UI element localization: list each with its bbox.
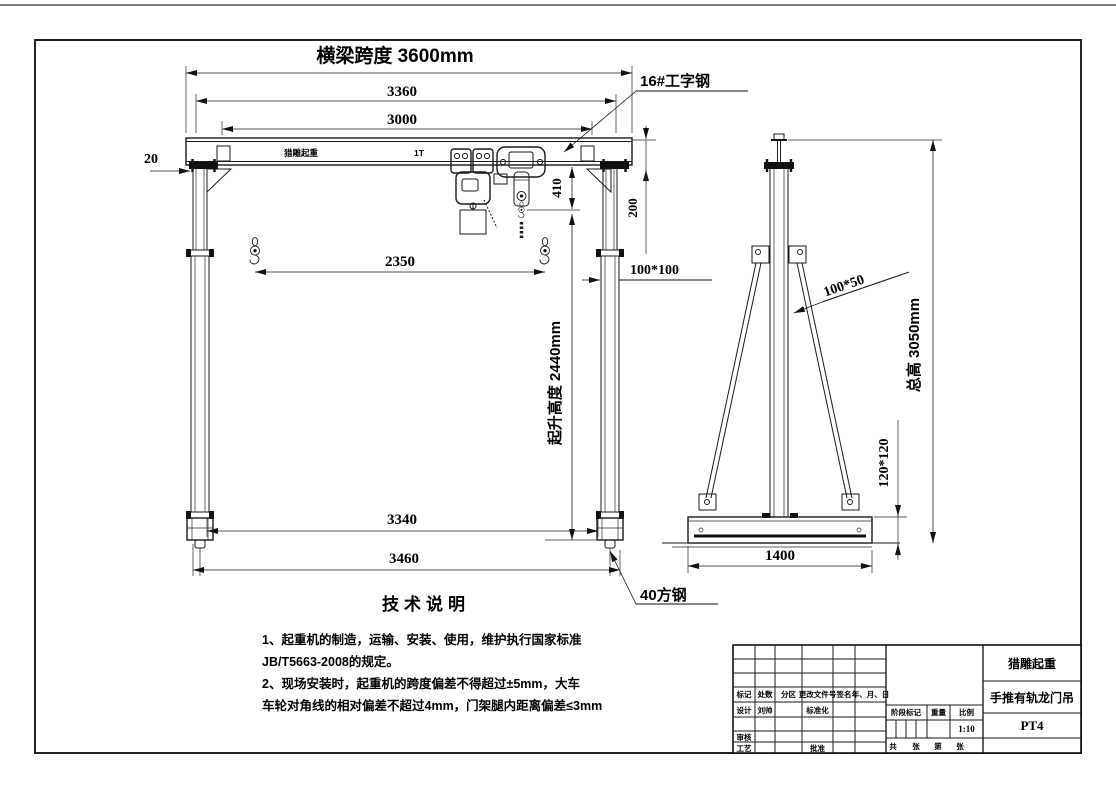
dim-410-text: 410 bbox=[549, 178, 564, 198]
tb-drawing-no: PT4 bbox=[1020, 718, 1044, 733]
base-beam bbox=[688, 513, 872, 543]
wheel-callout-text: 40方钢 bbox=[640, 586, 687, 604]
tb-row-review: 审核 bbox=[737, 732, 752, 742]
left-leg bbox=[186, 169, 214, 576]
tb-designer-name: 刘帅 bbox=[758, 705, 773, 715]
engineering-drawing-sheet: 猎雕起重 1T bbox=[0, 0, 1116, 787]
tb-scale-value: 1:10 bbox=[958, 724, 975, 734]
dim-span-text: 横梁跨度 3600mm bbox=[316, 44, 473, 67]
tb-sheet-unit2: 张 bbox=[956, 742, 964, 751]
tb-col-mark: 标记 bbox=[736, 689, 752, 699]
dim-3460-text: 3460 bbox=[389, 551, 419, 567]
right-corner-bracket bbox=[587, 169, 611, 192]
front-dimensions: 横梁跨度 3600mm 3360 3000 20 16#工字钢 410 bbox=[144, 44, 748, 604]
brace-foot-right bbox=[842, 494, 859, 510]
tb-row-approve: 批准 bbox=[810, 743, 825, 753]
tb-col-date: 年、月、日 bbox=[852, 689, 890, 699]
dim-2350-text: 2350 bbox=[385, 254, 415, 270]
end-stop-right bbox=[581, 146, 594, 161]
tb-weight: 重量 bbox=[931, 707, 946, 717]
tb-sheet-no: 第 bbox=[934, 741, 942, 751]
note-line-2: JB/T5663-2008的规定。 bbox=[262, 654, 399, 669]
gusset-left bbox=[752, 246, 769, 263]
brace-foot-left bbox=[699, 494, 716, 510]
tb-product-name: 手推有轨龙门吊 bbox=[990, 690, 1074, 705]
left-wheel bbox=[195, 540, 205, 548]
dim-200-text: 200 bbox=[625, 198, 640, 218]
note-line-4: 车轮对角线的相对偏差不超过4mm，门架腿内距离偏差≤3mm bbox=[262, 698, 602, 713]
total-height-text: 总高 3050mm bbox=[905, 298, 923, 392]
right-leg bbox=[596, 169, 624, 576]
leg-section-text: 100*100 bbox=[630, 263, 679, 278]
beam-callout-text: 16#工字钢 bbox=[640, 72, 710, 90]
dim-3000-text: 3000 bbox=[387, 112, 417, 128]
dim-3360-text: 3360 bbox=[387, 84, 417, 100]
dim-20-text: 20 bbox=[144, 152, 158, 167]
right-hook bbox=[540, 238, 549, 264]
column-top-flange bbox=[764, 162, 794, 169]
gantry-crane-drawing: 猎雕起重 1T bbox=[0, 0, 1116, 787]
chain-hoist-body bbox=[456, 172, 490, 204]
left-wheel-box bbox=[187, 518, 213, 540]
tb-company: 猎雕起重 bbox=[1008, 656, 1056, 671]
side-view: 100*50 总高 3050mm 120*120 1400 bbox=[662, 134, 942, 573]
tb-scale-label: 比例 bbox=[959, 707, 974, 717]
title-block: 标记 处数 分区 更改文件号 签名 年、月、日 设计 刘帅 标准化 审核 工艺 … bbox=[733, 645, 1081, 753]
tb-row-standardization: 标准化 bbox=[805, 705, 829, 715]
note-line-1: 1、起重机的制造，运输、安装、使用，维护执行国家标准 bbox=[262, 632, 582, 647]
load-box bbox=[460, 210, 486, 234]
tb-col-change-doc: 更改文件号 bbox=[799, 689, 837, 699]
tb-col-sign: 签名 bbox=[836, 689, 852, 699]
dim-1400-text: 1400 bbox=[765, 548, 795, 564]
column bbox=[770, 169, 788, 517]
front-view: 猎雕起重 1T bbox=[144, 44, 748, 604]
beam-capacity-text: 1T bbox=[414, 148, 425, 158]
gusset-right bbox=[789, 246, 806, 263]
beam-brand-text: 猎雕起重 bbox=[283, 148, 319, 158]
tb-sheet-total: 共 bbox=[889, 741, 897, 751]
right-wheel-box bbox=[597, 518, 623, 540]
left-hook bbox=[250, 238, 259, 264]
base-section-text: 120*120 bbox=[877, 439, 892, 488]
tb-stage-mark: 阶段标记 bbox=[891, 707, 921, 717]
side-dimensions: 100*50 总高 3050mm 120*120 1400 bbox=[688, 140, 942, 573]
left-corner-bracket bbox=[207, 169, 231, 192]
dim-3340-text: 3340 bbox=[387, 512, 417, 528]
technical-notes: 技术说明 1、起重机的制造，运输、安装、使用，维护执行国家标准 JB/T5663… bbox=[262, 594, 602, 713]
notes-title: 技术说明 bbox=[382, 594, 470, 614]
lift-height-text: 起升高度 2440mm bbox=[546, 321, 564, 446]
tb-row-design: 设计 bbox=[737, 705, 752, 715]
right-wheel bbox=[605, 540, 615, 548]
note-line-3: 2、现场安装时，起重机的跨度偏差不得超过±5mm，大车 bbox=[262, 676, 580, 691]
end-stop-left bbox=[217, 146, 230, 161]
tb-row-process: 工艺 bbox=[737, 743, 752, 753]
brace-section-text: 100*50 bbox=[822, 273, 867, 301]
tb-col-zone: 分区 bbox=[781, 689, 796, 699]
tb-col-count: 处数 bbox=[757, 689, 773, 699]
tb-sheet-unit1: 张 bbox=[912, 742, 920, 751]
